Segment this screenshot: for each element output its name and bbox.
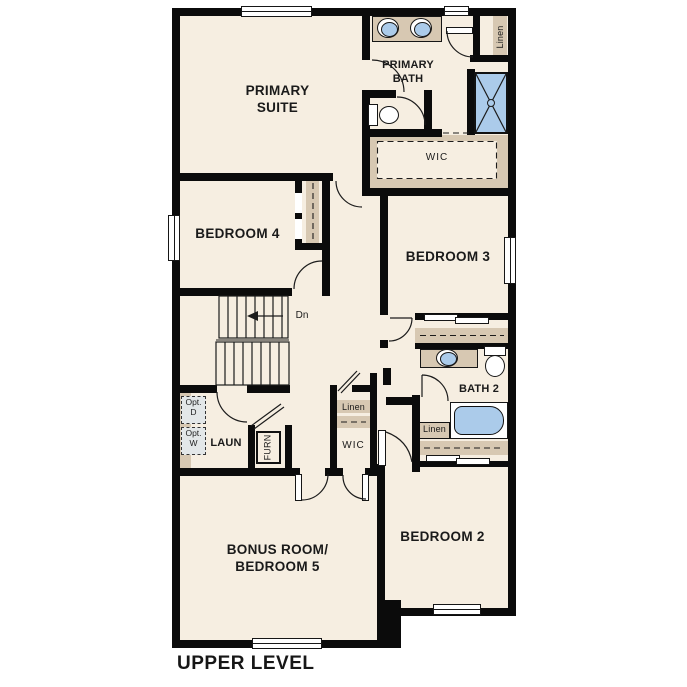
primary-suite-line1: PRIMARY [185,83,370,100]
room-label-bonus: BONUS ROOM/ BEDROOM 5 [180,542,375,576]
room-label-primary-suite: PRIMARY SUITE [185,83,370,117]
label-furnace: FURN [262,428,275,468]
room-label-bedroom4: BEDROOM 4 [180,226,295,243]
door-arc-laundry [217,392,247,422]
bonus-line2: BEDROOM 5 [180,559,375,576]
room-label-primary-bath: PRIMARY BATH [372,59,444,87]
door-arc-bath2 [422,375,448,401]
room-label-bath2: BATH 2 [450,383,508,397]
door-arc-bedroom2 [386,432,412,462]
door-arc-bonus-room [302,474,328,500]
label-linen-mid: Linen [337,402,370,413]
door-arc-bath-top [447,31,473,57]
room-label-wic-top: WIC [377,152,497,165]
door-arc-bedroom4 [294,261,322,289]
floorplan-upper-level: Opt. D Opt. W [0,0,687,687]
room-label-wic-mid: WIC [337,440,370,453]
closet-door-diagonal [338,371,360,393]
stairs-arrowhead [247,311,258,321]
primary-bath-line2: BATH [372,73,444,87]
furnace-door-diagonal [251,404,284,429]
room-label-bedroom3: BEDROOM 3 [388,249,508,266]
primary-bath-line1: PRIMARY [372,59,444,73]
label-linen-top-right: Linen [494,17,506,57]
room-label-laundry: LAUN [203,437,249,451]
bonus-line1: BONUS ROOM/ [180,542,375,559]
stairs [216,296,289,385]
door-arc-primary-suite [336,181,362,207]
plan-title: UPPER LEVEL [177,653,314,675]
door-arc-bedroom3 [389,318,412,341]
door-arc-wic-mid [343,475,366,499]
shower-glyph [476,74,506,132]
primary-suite-line2: SUITE [185,100,370,117]
label-stairs-dn: Dn [290,310,314,323]
door-arc-water-closet [397,97,425,125]
label-linen-bath2: Linen [419,424,450,435]
room-label-bedroom2: BEDROOM 2 [390,529,495,546]
